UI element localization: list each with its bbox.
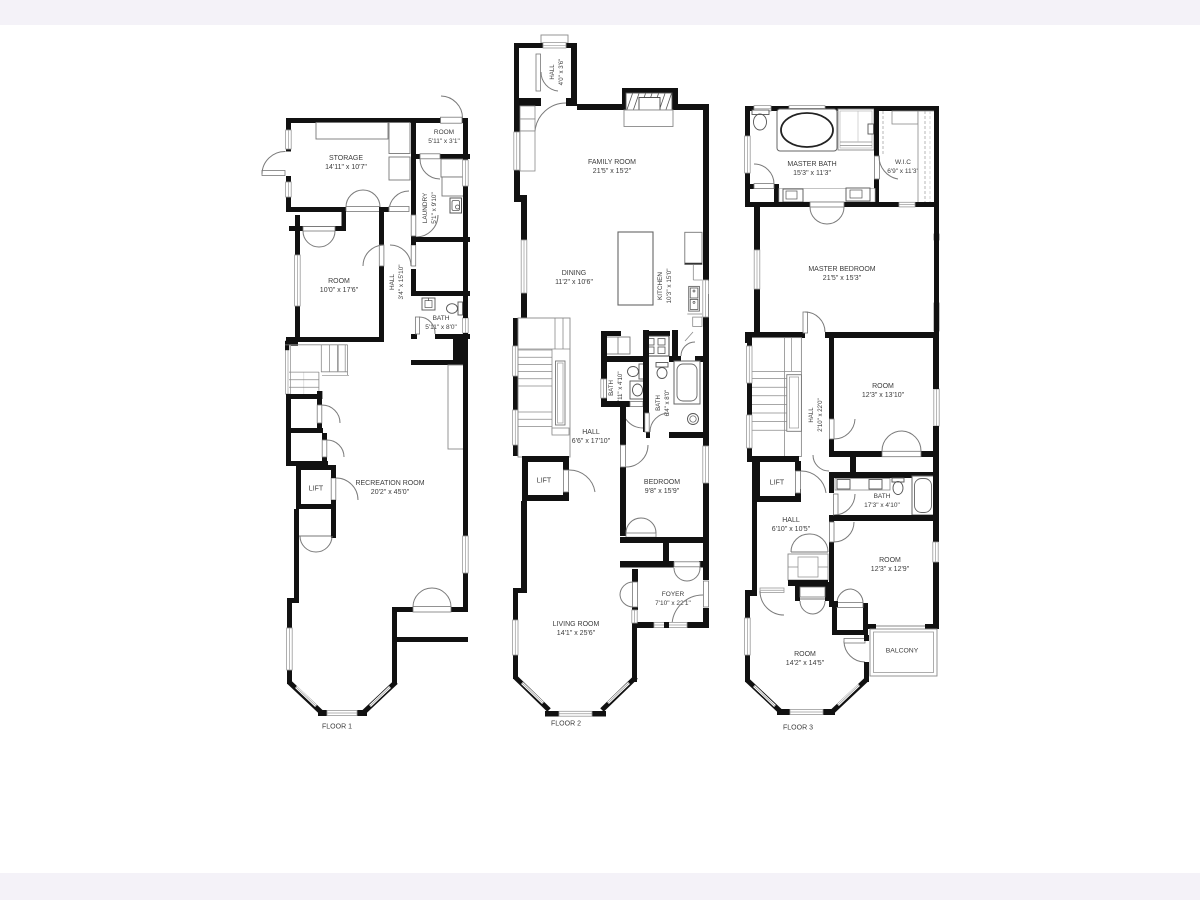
svg-text:FAMILY ROOM: FAMILY ROOM — [588, 159, 636, 166]
svg-text:3'4" x 15'10": 3'4" x 15'10" — [398, 264, 405, 299]
svg-text:HALL: HALL — [582, 429, 600, 436]
svg-text:STORAGE: STORAGE — [329, 155, 363, 162]
svg-text:14'2" x 14'5": 14'2" x 14'5" — [786, 660, 825, 667]
svg-text:LIFT: LIFT — [537, 478, 552, 485]
svg-text:BATH: BATH — [874, 493, 891, 500]
svg-text:12'3" x 13'10": 12'3" x 13'10" — [862, 392, 905, 399]
svg-text:6'6" x 17'10": 6'6" x 17'10" — [572, 438, 611, 445]
svg-text:BATH: BATH — [433, 315, 450, 322]
svg-text:4'11" x 4'10": 4'11" x 4'10" — [617, 372, 624, 405]
svg-text:17'3" x 4'10": 17'3" x 4'10" — [864, 502, 900, 509]
svg-text:10'3" x 15'0": 10'3" x 15'0" — [666, 268, 673, 303]
svg-text:6'10" x 10'5": 6'10" x 10'5" — [772, 526, 811, 533]
svg-text:BEDROOM: BEDROOM — [644, 479, 680, 486]
svg-text:21'5" x 15'2": 21'5" x 15'2" — [593, 168, 632, 175]
svg-text:KITCHEN: KITCHEN — [657, 272, 664, 300]
svg-text:BATH: BATH — [655, 395, 662, 411]
svg-text:6'9" x 11'3": 6'9" x 11'3" — [887, 168, 919, 175]
svg-text:FOYER: FOYER — [662, 591, 685, 598]
svg-text:14'11" x 10'7": 14'11" x 10'7" — [325, 164, 367, 171]
svg-text:MASTER BATH: MASTER BATH — [787, 161, 836, 168]
svg-text:9'8" x 15'9": 9'8" x 15'9" — [645, 488, 680, 495]
svg-text:10'0" x 17'6": 10'0" x 17'6" — [320, 287, 359, 294]
svg-text:ROOM: ROOM — [328, 278, 350, 285]
svg-text:MASTER BEDROOM: MASTER BEDROOM — [808, 266, 875, 273]
svg-text:LAUNDRY: LAUNDRY — [422, 192, 429, 223]
svg-text:5'1" x 9'10": 5'1" x 9'10" — [431, 192, 438, 224]
svg-text:HALL: HALL — [549, 64, 556, 80]
svg-text:20'2" x 45'0": 20'2" x 45'0" — [371, 489, 410, 496]
svg-text:LIFT: LIFT — [770, 480, 785, 487]
svg-text:ROOM: ROOM — [794, 651, 816, 658]
svg-text:LIVING ROOM: LIVING ROOM — [553, 621, 600, 628]
svg-text:RECREATION ROOM: RECREATION ROOM — [355, 480, 424, 487]
svg-text:HALL: HALL — [389, 274, 396, 290]
svg-text:FLOOR 2: FLOOR 2 — [551, 721, 581, 728]
svg-text:21'5" x 15'3": 21'5" x 15'3" — [823, 275, 862, 282]
svg-text:ROOM: ROOM — [434, 129, 454, 136]
svg-text:W.I.C: W.I.C — [895, 159, 911, 166]
svg-text:2'10" x 22'0": 2'10" x 22'0" — [817, 398, 824, 431]
svg-text:HALL: HALL — [808, 407, 815, 423]
svg-text:12'3" x 12'9": 12'3" x 12'9" — [871, 566, 910, 573]
svg-text:ROOM: ROOM — [879, 557, 901, 564]
svg-text:DINING: DINING — [562, 270, 587, 277]
svg-text:LIFT: LIFT — [309, 486, 324, 493]
svg-text:HALL: HALL — [782, 517, 800, 524]
svg-text:FLOOR 1: FLOOR 1 — [322, 724, 352, 731]
svg-text:6'4" x 8'0": 6'4" x 8'0" — [664, 390, 671, 417]
svg-text:BATH: BATH — [608, 380, 615, 396]
svg-text:5'11" x 3'1": 5'11" x 3'1" — [428, 138, 460, 145]
svg-text:14'1" x 25'6": 14'1" x 25'6" — [557, 630, 596, 637]
svg-text:7'10" x 22'1": 7'10" x 22'1" — [655, 600, 691, 607]
svg-text:ROOM: ROOM — [872, 383, 894, 390]
svg-text:5'11" x 8'0": 5'11" x 8'0" — [425, 324, 457, 331]
svg-text:FLOOR 3: FLOOR 3 — [783, 725, 813, 732]
svg-text:4'0" x 3'6": 4'0" x 3'6" — [558, 59, 565, 86]
svg-text:BALCONY: BALCONY — [886, 648, 919, 655]
svg-text:15'3" x 11'3": 15'3" x 11'3" — [793, 170, 831, 177]
svg-text:11'2" x 10'6": 11'2" x 10'6" — [555, 279, 593, 286]
